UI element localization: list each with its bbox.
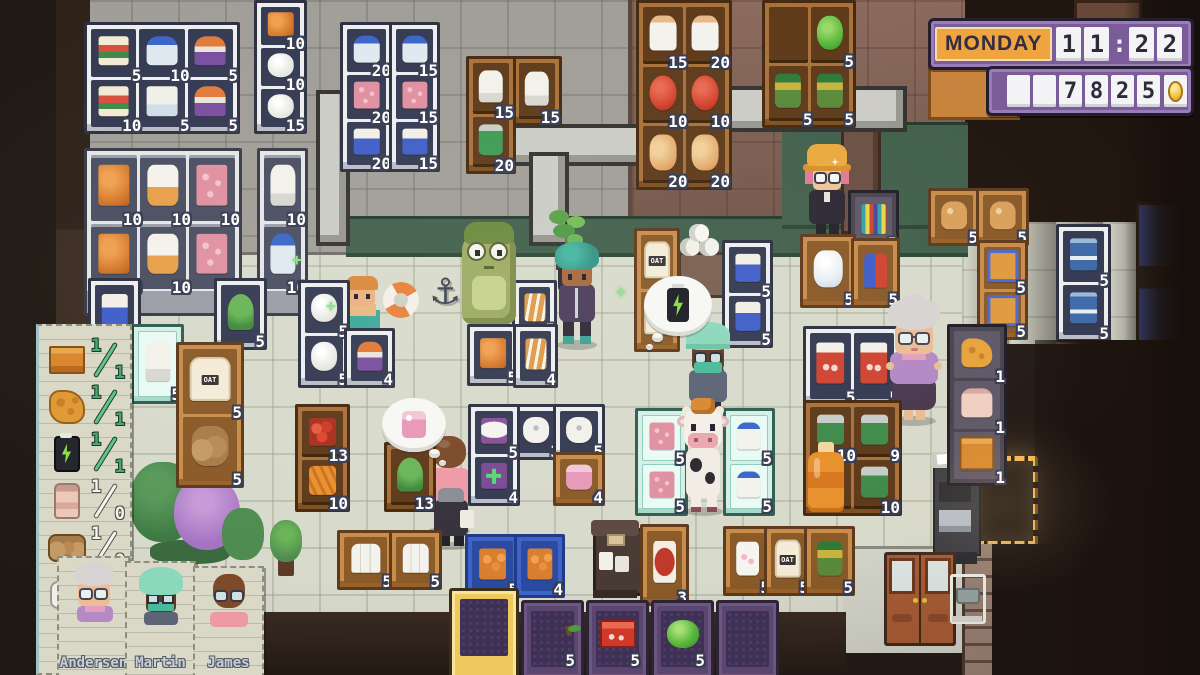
stock-count: 10 (286, 77, 305, 93)
shelf-cell[interactable]: 15 (473, 63, 509, 114)
meatpink-icon (649, 471, 674, 498)
thought-bubble-battery (644, 276, 712, 350)
checklist-item: 11 (39, 430, 130, 477)
shelf-cell[interactable]: 20 (686, 7, 726, 64)
shelf-cell[interactable]: 5 (305, 336, 343, 382)
shelf-cell[interactable]: 15 (643, 7, 683, 64)
milktrio-icon (351, 544, 380, 573)
cheese-icon (49, 390, 85, 424)
shelf-cell[interactable]: 4 (351, 335, 388, 381)
fridge-blue-right[interactable]: 55 (1056, 224, 1111, 342)
shelf-cell[interactable]: 5 (188, 80, 233, 128)
shelf-cell[interactable]: 5 (642, 415, 681, 461)
clock-panel: MONDAY 11:22 (928, 18, 1194, 70)
milkbottle-icon (649, 15, 676, 50)
milkbottle-icon (692, 15, 719, 50)
coin-cell (1164, 75, 1187, 107)
character-player[interactable] (553, 244, 601, 350)
shelf-cell[interactable]: 20 (347, 29, 386, 72)
basket-stand[interactable] (948, 568, 986, 626)
cans-icon (861, 414, 889, 445)
shelf-cell[interactable]: 20 (347, 122, 386, 165)
bottle-icon (54, 483, 80, 519)
clock-digit: 2 (1157, 27, 1182, 61)
shelf-cell[interactable]: 5 (811, 7, 850, 63)
freezer-mint-milk[interactable]: 55 (723, 408, 775, 516)
meatbag-icon (653, 541, 677, 583)
money-panel: 7825 (986, 66, 1194, 116)
crate-icon (49, 346, 85, 374)
peppers-icon (309, 418, 337, 446)
chicken-icon (267, 95, 294, 119)
sparkle-icon: + (292, 250, 302, 269)
shelf-cell[interactable]: 5 (396, 537, 435, 583)
stock-count: 10 (711, 114, 730, 130)
pickles-icon (817, 74, 843, 108)
stock-count: 10 (221, 212, 240, 228)
milkcarton-icon (147, 87, 178, 116)
cheese-icon (961, 338, 992, 367)
pickles-icon (817, 541, 842, 576)
tomato-icon (649, 75, 676, 110)
thought-bubble-soap (382, 398, 446, 466)
soap-icon (566, 465, 592, 490)
stock-count: 20 (711, 55, 730, 71)
plant-icon (227, 294, 254, 330)
hotbar-slot-1[interactable] (449, 588, 519, 675)
water-icon (402, 35, 427, 62)
stock-count: 5 (228, 118, 238, 134)
shelf-cell[interactable]: 4 (475, 457, 513, 500)
shelf-cell[interactable]: 13 (302, 411, 343, 457)
orangefood-icon (267, 13, 294, 37)
anchor-icon: ⚓ (432, 264, 459, 315)
stand-milk-2[interactable]: 5 (389, 530, 442, 590)
money-digit: 7 (1059, 75, 1082, 107)
meatpink-icon (402, 82, 427, 109)
cans-icon (817, 414, 845, 445)
jacket-icon (864, 253, 888, 288)
avatar (136, 570, 186, 626)
meatpink-icon (196, 233, 227, 274)
bun-icon (692, 135, 719, 170)
milkbottle2-icon (737, 471, 761, 498)
shelf-soap[interactable]: 4 (553, 452, 605, 506)
stock-count: 5 (761, 284, 771, 300)
shelf-dim-right (1136, 202, 1198, 360)
hotbar: 555 (449, 588, 779, 675)
shelf-cell[interactable]: 10 (643, 67, 683, 124)
stock-count: 10 (172, 280, 191, 296)
shelf-cell[interactable]: 5 (138, 331, 177, 397)
stock-count: 10 (123, 212, 142, 228)
counter-water[interactable]: 5 (800, 234, 856, 308)
bluedoor-icon (1070, 292, 1098, 323)
shelf-cell[interactable]: 5 (858, 245, 893, 301)
icepop-icon (195, 87, 226, 116)
grocery-shelf-veg[interactable]: 555 (762, 0, 856, 128)
shelf-cell[interactable]: 5 (221, 285, 260, 343)
grocery-shelf-dairy[interactable]: 152010102020 (636, 0, 732, 190)
sparkle-icon: + (616, 282, 626, 301)
freezer-chicken[interactable]: 55 (298, 280, 350, 388)
breadbag-icon (147, 233, 178, 274)
shelf-cell[interactable]: 5 (188, 29, 233, 77)
shelf-cell[interactable]: 10 (91, 80, 136, 128)
shelf-cell[interactable]: 5 (769, 66, 808, 122)
stock-count: 5 (803, 112, 813, 128)
shelf-cell[interactable]: 10 (261, 7, 300, 45)
meatpink-icon (649, 423, 674, 450)
character-worker-hardhat[interactable] (801, 146, 853, 242)
stand-bread-2[interactable]: 5 (976, 188, 1029, 246)
friesbox-icon (402, 128, 427, 155)
shelf-cell[interactable]: 5 (730, 415, 768, 461)
entrance-doors[interactable] (884, 552, 956, 646)
statue-zombie (457, 224, 521, 334)
staff-name: James (195, 655, 262, 671)
shelf-cell[interactable]: 20 (686, 126, 726, 183)
soap-icon (402, 411, 426, 438)
shelf-cell[interactable]: 5 (935, 195, 973, 239)
shelf-cell[interactable]: 5 (344, 537, 387, 583)
shelf-cell[interactable]: 10 (139, 29, 184, 77)
stock-count: 5 (843, 580, 853, 596)
friesbox-icon (735, 254, 760, 282)
stock-count: 5 (762, 499, 772, 515)
hotbar-slot-5[interactable] (716, 600, 779, 675)
shelf-cell[interactable]: 1 (954, 381, 1000, 428)
water-icon (353, 35, 380, 62)
shelf-cell[interactable]: 5 (730, 533, 765, 589)
shelf-cell[interactable]: 1 (954, 331, 1000, 378)
item-label: OAT (649, 256, 666, 266)
stock-count: 10 (122, 118, 141, 134)
stock-count: 13 (415, 496, 434, 512)
snackbox-icon (98, 36, 129, 65)
shelf-cell[interactable]: 20 (347, 75, 386, 118)
ricebag-icon (479, 71, 503, 102)
carrots-icon (309, 466, 337, 494)
friesbox-icon (353, 128, 380, 155)
money-blank-cell (1033, 75, 1056, 107)
stock-count: 10 (172, 212, 191, 228)
shelf-cell[interactable]: 10 (91, 155, 137, 221)
staff-card-james[interactable]: James (193, 566, 264, 675)
ricebag-icon (525, 71, 549, 106)
stock-count: 20 (711, 174, 730, 190)
shelf-cell[interactable]: 5 (807, 241, 849, 301)
pickles-icon (775, 74, 801, 108)
bluebox-icon (987, 295, 1018, 327)
shelf-cell[interactable]: 5 (729, 247, 766, 293)
bluebox-icon (987, 250, 1018, 282)
shelf-cell[interactable]: 15 (396, 75, 433, 118)
bluedoor-icon (1070, 239, 1098, 270)
croissant-icon (525, 339, 546, 370)
chicken-icon (267, 54, 294, 78)
backroom-shelf-rice[interactable]: 1520 (466, 56, 516, 174)
mallow-icon (736, 541, 760, 576)
hotbar-count: 5 (565, 653, 575, 669)
stock-count: 15 (668, 55, 687, 71)
ricebag-icon (270, 165, 295, 206)
shelf-cell[interactable]: 5 (810, 333, 851, 399)
shelf-cell[interactable]: 3 (517, 411, 555, 453)
stock-count: 5 (844, 112, 854, 128)
sparkle-icon: + (326, 296, 336, 315)
cratebox-icon (959, 437, 994, 470)
game-screen: ⚓ (0, 0, 1200, 675)
hotbar-count: 5 (695, 653, 705, 669)
stock-count: 10 (287, 212, 306, 228)
stock-count: 20 (495, 158, 514, 174)
shelf-cell[interactable]: 4 (521, 541, 558, 591)
staff-name: Martin (127, 655, 194, 671)
stock-count: 10 (329, 496, 348, 512)
shelf-cell[interactable]: 5 (811, 533, 848, 589)
shelf-cell[interactable]: 5 (305, 287, 343, 333)
shelf-cell[interactable]: 5 (474, 331, 512, 379)
lifebuoy-decor (381, 280, 421, 324)
bun-icon (649, 135, 676, 170)
clock-colon: : (1112, 27, 1126, 61)
avatar (204, 574, 254, 628)
staff-card-martin[interactable]: Martin (125, 561, 196, 675)
stand-milk-1[interactable]: 5 (337, 530, 394, 590)
orangecrate-icon (479, 549, 507, 580)
shelf-cell[interactable]: 5 (91, 29, 136, 77)
meatpink-icon (196, 165, 227, 206)
clock-digit: 1 (1084, 27, 1109, 61)
stock-count: 4 (508, 490, 518, 506)
money-counter: 7825 (1007, 75, 1160, 107)
clock-digit: 1 (1056, 27, 1081, 61)
checklist-item: 11 (39, 383, 130, 430)
staff-card-andersen[interactable]: Andersen (57, 556, 130, 675)
sack-icon (192, 426, 229, 466)
croissant-icon (524, 294, 545, 321)
freezer-icepop[interactable]: 4 (344, 328, 395, 388)
stock-count: 4 (593, 490, 603, 506)
waterjug-icon (814, 250, 843, 287)
display-jacket[interactable]: 5 (851, 238, 900, 308)
tproll-icon (566, 417, 592, 443)
stock-count: 10 (668, 114, 687, 130)
money-digit: 2 (1111, 75, 1134, 107)
stock-count: 5 (1099, 273, 1109, 289)
checklist-count: 11 (89, 433, 123, 475)
hotbar-slot-3-red-box[interactable]: 5 (586, 600, 649, 675)
redbox-icon (816, 343, 844, 384)
stock-count: 4 (546, 372, 556, 388)
fridge-snack-orange[interactable]: 5 (467, 324, 519, 386)
shelf-cell[interactable]: 4 (520, 331, 551, 381)
shelf-cell[interactable]: 5 (1063, 231, 1104, 282)
battery-icon (54, 436, 80, 472)
shelf-cell[interactable]: 5 (642, 464, 681, 510)
stock-count: 5 (132, 68, 142, 84)
chicken-icon (311, 342, 337, 370)
snackbox-icon (98, 87, 129, 116)
hotbar-count: 5 (630, 653, 640, 669)
bread-icon (941, 202, 967, 229)
stock-count: 5 (180, 118, 190, 134)
shelf-restock[interactable]: 111 (947, 324, 1007, 486)
shelf-cell[interactable]: 5 (984, 247, 1021, 289)
money-digit: 5 (1137, 75, 1160, 107)
shelf-cell[interactable]: 10 (686, 67, 726, 124)
stock-count: 5 (844, 54, 854, 70)
shelf-cell[interactable]: 10 (854, 460, 895, 510)
shelf-cell[interactable]: 5 (475, 411, 513, 454)
freezer-column-mid-1[interactable]: 202020 (340, 22, 393, 172)
shelf-cell[interactable]: 5 (472, 541, 513, 591)
stock-count: 13 (329, 448, 348, 464)
orangefood-icon (98, 165, 129, 206)
red-box-icon (600, 620, 636, 648)
shelf-cell[interactable]: 10 (140, 224, 186, 290)
stock-count: 5 (430, 574, 440, 590)
freezer-snacks-grid[interactable]: 51051055 (84, 22, 240, 134)
shelf-cell[interactable]: 5 (183, 417, 237, 482)
shelf-cell[interactable]: 5 (811, 66, 850, 122)
shelf-cell[interactable]: 5 (730, 464, 768, 510)
clock-digit: 2 (1129, 27, 1154, 61)
shelf-cell[interactable]: 9 (854, 407, 895, 457)
stock-count: 15 (541, 110, 560, 126)
shelf-cell[interactable]: 5 (139, 80, 184, 128)
stock-count: 5 (762, 451, 772, 467)
shelf-cell[interactable]: 1 (954, 432, 1000, 479)
freezer-column-left[interactable]: 101015 (254, 0, 307, 134)
stock-count: 15 (419, 156, 438, 172)
clock-time: 11:22 (1056, 27, 1182, 61)
checklist-item: 11 (39, 336, 130, 383)
firstaid-icon (481, 463, 507, 489)
stock-count: 5 (508, 445, 518, 461)
orangefood-icon (480, 338, 506, 368)
stand-bread-1[interactable]: 5 (928, 188, 980, 246)
shelf-cell[interactable]: 10 (189, 155, 235, 221)
shelf-cell[interactable]: 15 (261, 89, 300, 127)
cans-icon (861, 467, 889, 498)
pads-icon (481, 417, 507, 443)
shelf-cell[interactable]: OAT5 (183, 349, 237, 414)
shelf-cell[interactable]: 5 (560, 411, 598, 453)
shelf-cell[interactable]: OAT5 (771, 533, 804, 589)
stock-count: 1 (995, 420, 1005, 436)
shelf-cell[interactable]: 15 (396, 122, 433, 165)
character-cow-mascot[interactable] (677, 402, 729, 516)
hotbar-slot-2-apple[interactable]: 5 (521, 600, 584, 675)
shelf-cell[interactable]: 4 (560, 459, 598, 499)
checklist-count: 11 (89, 386, 123, 428)
stock-count: 20 (668, 174, 687, 190)
pinkbottle-icon (961, 388, 992, 417)
fridge-croissant-2[interactable]: 4 (513, 324, 558, 388)
shelf-cell[interactable] (769, 7, 808, 63)
stock-count: 10 (286, 36, 305, 52)
stock-count: 5 (255, 334, 265, 350)
avatar (69, 566, 119, 624)
stock-count: 1 (995, 369, 1005, 385)
stock-count: 5 (1016, 280, 1026, 296)
stock-count: 5 (228, 68, 238, 84)
shelf-cell[interactable]: 15 (396, 29, 433, 72)
stock-count: 15 (495, 105, 514, 121)
shelf-cell[interactable]: 5 (1063, 285, 1104, 336)
shelf-cell[interactable]: 10 (261, 48, 300, 86)
stock-count: 15 (286, 118, 305, 134)
stock-count: 10 (881, 500, 900, 516)
umbrella-icon (861, 204, 886, 234)
coin-icon (1168, 81, 1183, 102)
milktrio-icon (402, 544, 429, 573)
lettuce-icon (667, 620, 699, 648)
freezer-column-mid-2[interactable]: 151515 (389, 22, 440, 172)
shelf-cell[interactable]: 20 (643, 126, 683, 183)
orangecrate-icon (527, 549, 552, 580)
shelf-produce[interactable]: 1310 (295, 404, 350, 512)
stock-count: 15 (419, 110, 438, 126)
stock-count: 5 (232, 472, 242, 488)
hotbar-slot-4-lettuce[interactable]: 5 (651, 600, 714, 675)
shelf-cell[interactable]: 10 (302, 460, 343, 506)
item-label: OAT (202, 375, 219, 385)
shelf-cell[interactable]: 20 (473, 117, 509, 168)
juice-bottle-decor (802, 442, 850, 514)
shelf-pharmacy[interactable]: 54 (468, 404, 520, 506)
day-label: MONDAY (935, 27, 1052, 61)
shelf-cell[interactable]: 15 (519, 63, 555, 119)
breadbag-icon (147, 165, 178, 206)
stock-count: 5 (761, 332, 771, 348)
meatpink-icon (353, 82, 380, 109)
outside-dark-right (1035, 340, 1200, 675)
small-plant-decor (266, 520, 306, 584)
stock-count: 10 (170, 68, 189, 84)
display-pickle-jar[interactable]: 5 (804, 526, 855, 596)
tproll-icon (523, 417, 549, 443)
lettuce-icon (817, 15, 843, 49)
orangefood-icon (98, 233, 129, 274)
staff-name: Andersen (59, 655, 128, 671)
icepop-icon (357, 342, 382, 371)
money-digit: 8 (1085, 75, 1108, 107)
bread-icon (989, 202, 1016, 229)
shelf-cell[interactable]: 10 (140, 155, 186, 221)
oat-stand[interactable]: OAT55 (176, 342, 244, 488)
stock-count: 5 (1016, 324, 1026, 340)
outside-dark-right-2 (992, 544, 1052, 675)
icepop-icon (195, 36, 226, 65)
shelf-cell[interactable]: 10 (264, 155, 301, 221)
stock-count: 1 (995, 470, 1005, 486)
water-icon (147, 36, 178, 65)
checklist-count: 10 (89, 480, 123, 522)
backroom-shelf-rice-2[interactable]: 15 (512, 56, 562, 126)
money-blank-cell (1007, 75, 1030, 107)
plant-display[interactable]: 5 (214, 278, 267, 350)
stock-count: 4 (383, 372, 393, 388)
friesbox-icon (735, 302, 760, 330)
item-label: OAT (779, 555, 796, 565)
shelf-cell[interactable]: 5 (983, 195, 1022, 239)
milkbottle2-icon (737, 423, 761, 450)
ricebag-icon (145, 342, 170, 382)
tomato-icon (692, 75, 719, 110)
